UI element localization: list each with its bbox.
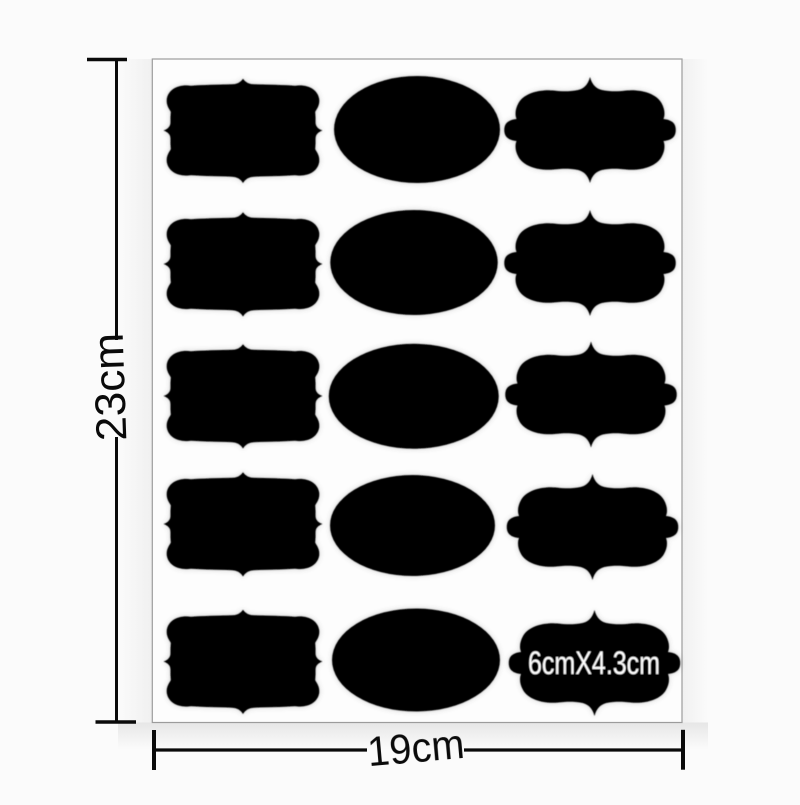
svg-text:19cm: 19cm bbox=[365, 720, 466, 775]
svg-text:6cmX4.3cm: 6cmX4.3cm bbox=[528, 645, 660, 681]
svg-text:23cm: 23cm bbox=[85, 332, 137, 442]
